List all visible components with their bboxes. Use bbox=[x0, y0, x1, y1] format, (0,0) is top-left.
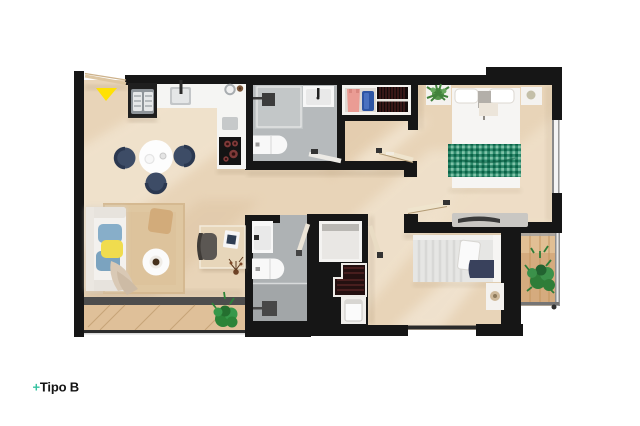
svg-text:+Tipo B: +Tipo B bbox=[33, 380, 79, 395]
